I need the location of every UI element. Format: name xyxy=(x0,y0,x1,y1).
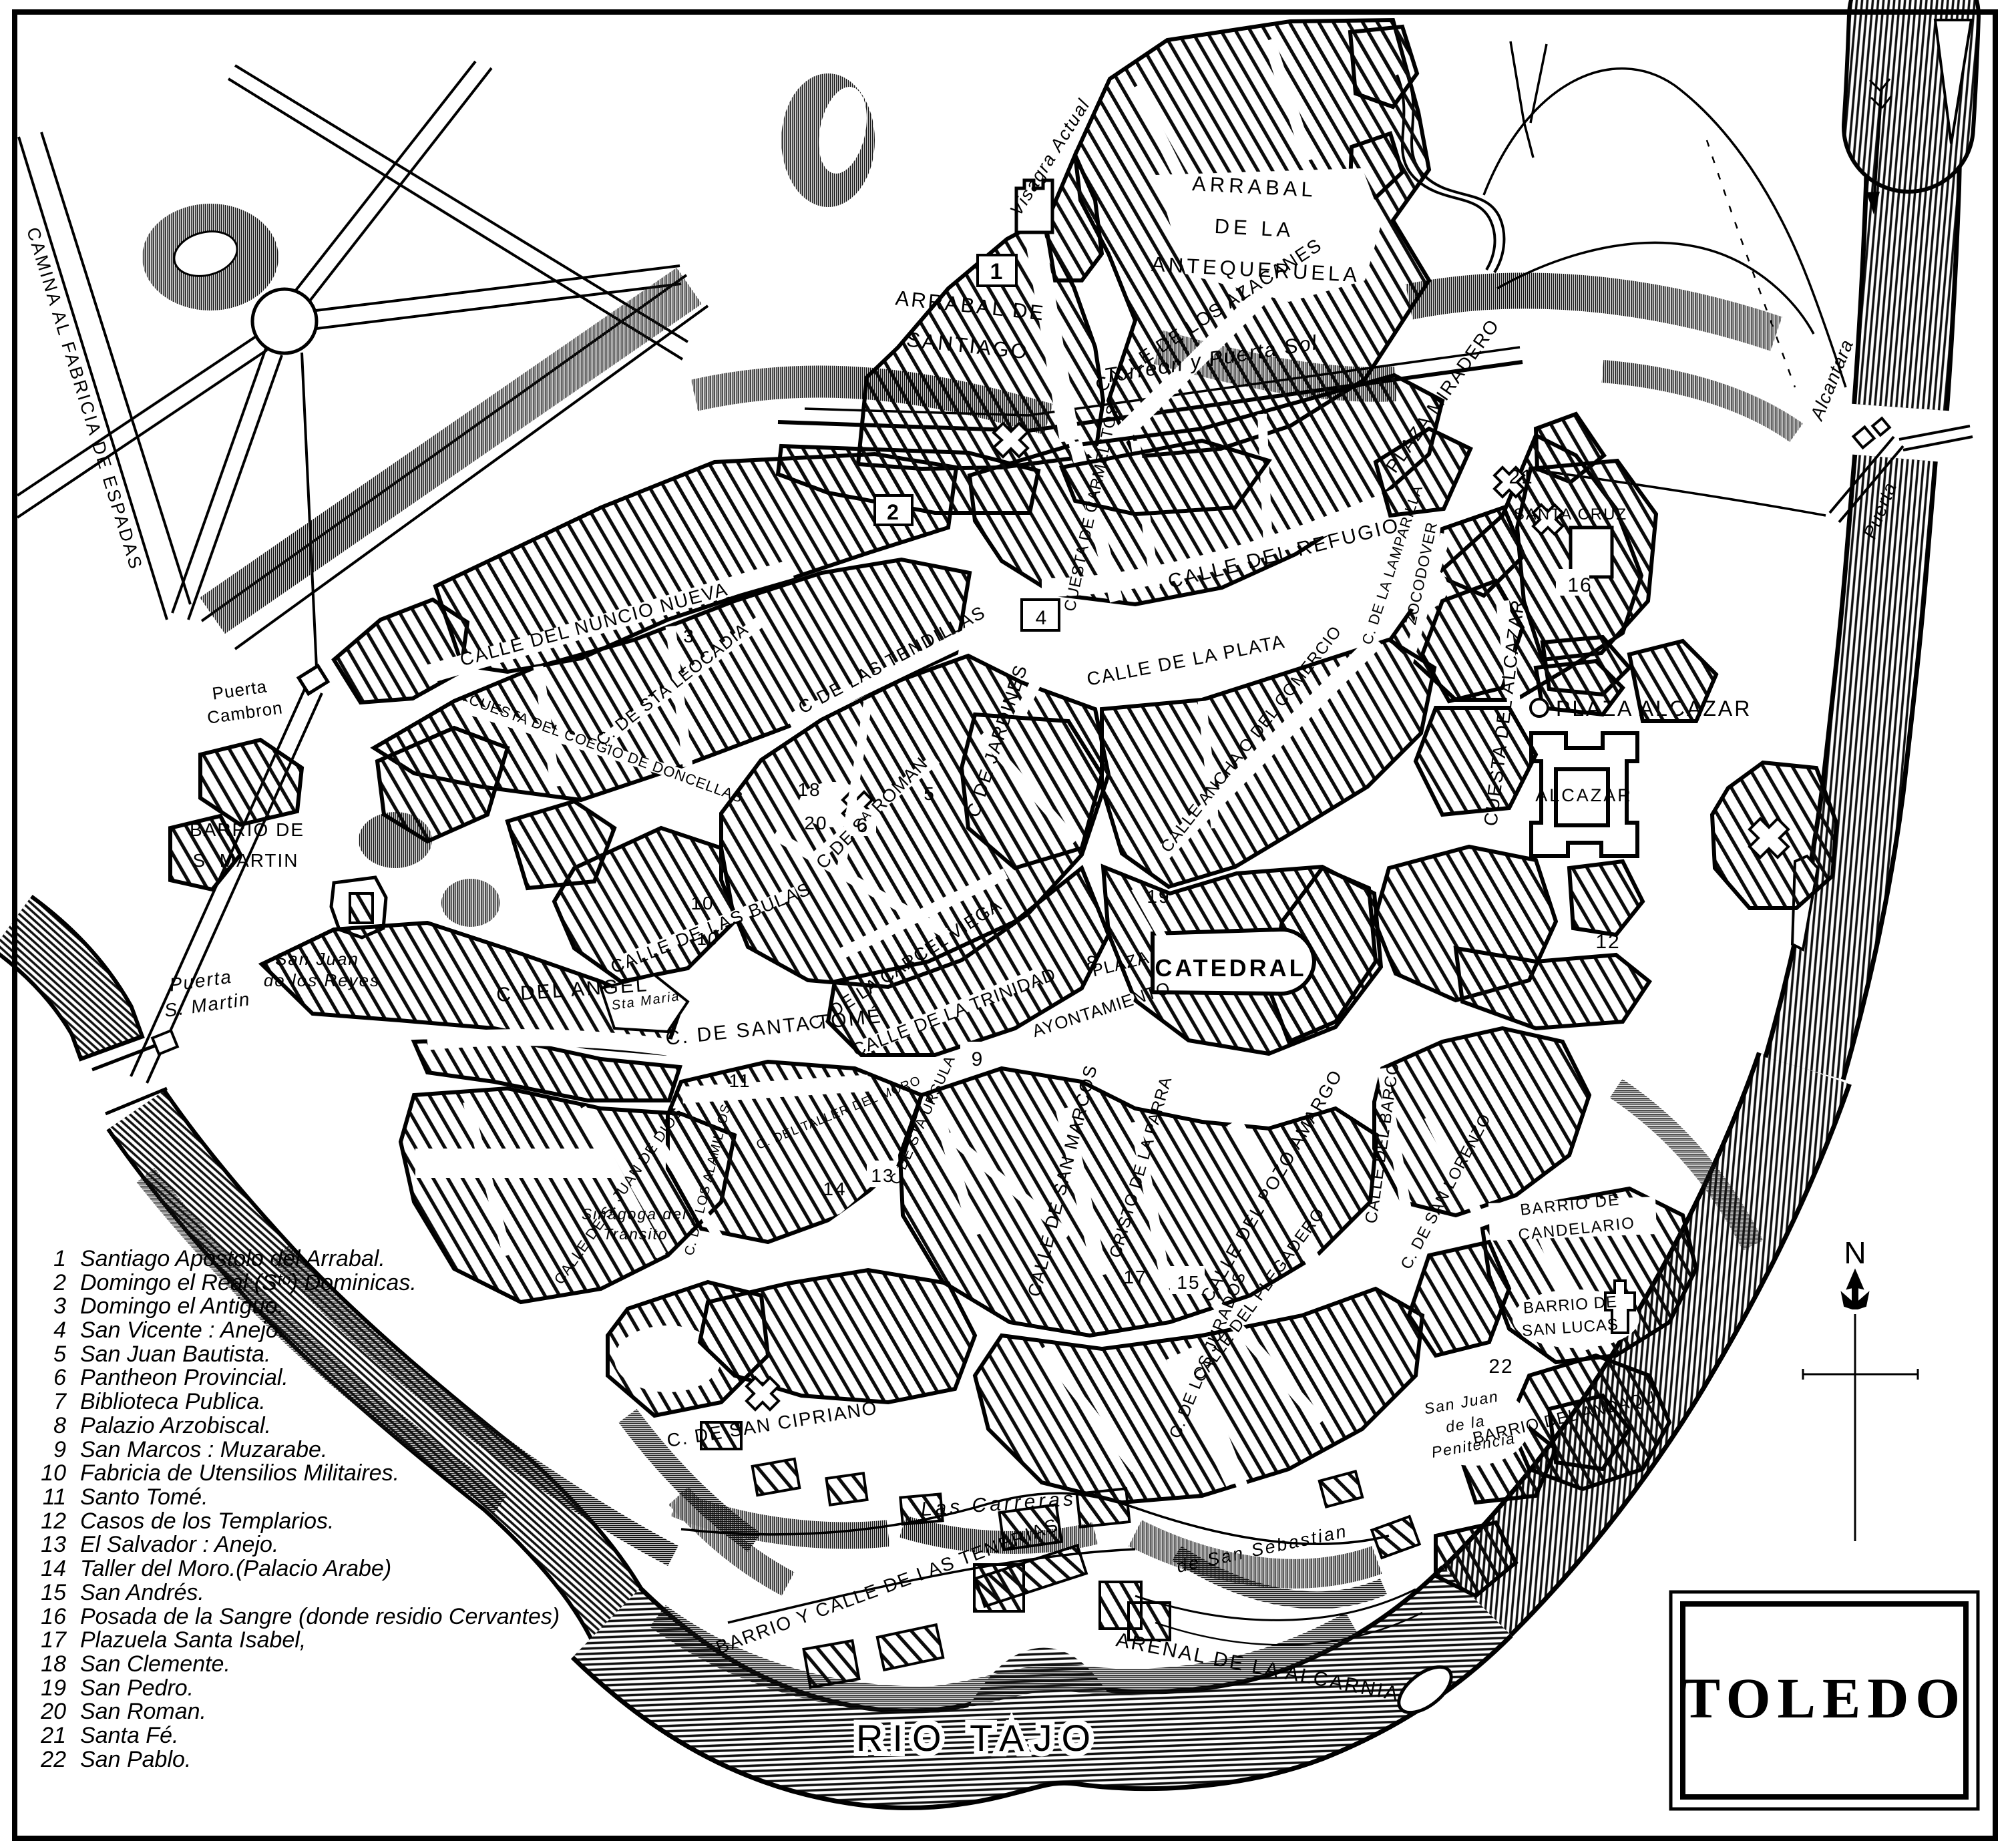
svg-text:S. MARTIN: S. MARTIN xyxy=(192,850,298,871)
svg-text:19: 19 xyxy=(41,1675,66,1701)
svg-text:5: 5 xyxy=(924,783,936,804)
svg-text:21: 21 xyxy=(40,1723,66,1748)
svg-text:CATEDRAL: CATEDRAL xyxy=(1155,954,1306,982)
svg-text:8: 8 xyxy=(53,1413,66,1438)
svg-text:de los Reyes: de los Reyes xyxy=(264,970,380,990)
svg-text:11: 11 xyxy=(43,1484,66,1510)
svg-text:Santa Fé.: Santa Fé. xyxy=(80,1723,178,1748)
svg-text:3: 3 xyxy=(683,626,695,646)
svg-text:San Pedro.: San Pedro. xyxy=(80,1675,194,1701)
svg-text:Palazio Arzobiscal.: Palazio Arzobiscal. xyxy=(80,1413,271,1438)
svg-text:17: 17 xyxy=(1123,1267,1147,1287)
svg-text:1: 1 xyxy=(53,1246,66,1271)
svg-text:4: 4 xyxy=(53,1317,66,1343)
svg-text:15: 15 xyxy=(41,1580,66,1605)
svg-text:4: 4 xyxy=(1036,607,1048,629)
svg-text:Transito: Transito xyxy=(603,1225,668,1243)
svg-text:Casos de los Templarios.: Casos de los Templarios. xyxy=(80,1508,334,1534)
svg-text:San Juan: San Juan xyxy=(275,949,359,969)
svg-text:18: 18 xyxy=(41,1651,66,1677)
svg-text:Biblioteca Publica.: Biblioteca Publica. xyxy=(80,1389,266,1414)
svg-text:Santo Tomé.: Santo Tomé. xyxy=(80,1484,208,1510)
svg-text:DE LA: DE LA xyxy=(1214,214,1295,242)
svg-text:16: 16 xyxy=(41,1604,66,1629)
svg-text:9: 9 xyxy=(53,1437,66,1462)
svg-text:ALCAZAR: ALCAZAR xyxy=(1535,785,1633,805)
svg-text:El Salvador : Anejo.: El Salvador : Anejo. xyxy=(80,1532,278,1557)
svg-text:20: 20 xyxy=(40,1699,66,1724)
svg-text:Santiago Apostolo del Arrabal.: Santiago Apostolo del Arrabal. xyxy=(80,1246,385,1271)
svg-text:15: 15 xyxy=(1177,1272,1200,1293)
svg-text:14: 14 xyxy=(823,1179,846,1199)
svg-text:SANTA CRUZ: SANTA CRUZ xyxy=(1514,505,1627,524)
svg-text:Plazuela Santa Isabel,: Plazuela Santa Isabel, xyxy=(80,1627,306,1653)
svg-text:3: 3 xyxy=(53,1293,66,1319)
svg-text:San Juan Bautista.: San Juan Bautista. xyxy=(80,1342,270,1367)
svg-text:22: 22 xyxy=(1488,1356,1513,1378)
svg-text:Domingo el Real (Sᵗᵒ) Dominica: Domingo el Real (Sᵗᵒ) Dominicas. xyxy=(80,1270,417,1295)
svg-text:N: N xyxy=(1844,1235,1866,1270)
svg-text:2: 2 xyxy=(887,500,900,524)
svg-text:San Clemente.: San Clemente. xyxy=(80,1651,230,1677)
svg-text:17: 17 xyxy=(41,1627,67,1653)
svg-text:18: 18 xyxy=(797,779,821,800)
svg-text:11: 11 xyxy=(729,1070,751,1091)
svg-text:9: 9 xyxy=(972,1048,984,1070)
svg-text:7: 7 xyxy=(53,1389,67,1414)
svg-text:20: 20 xyxy=(804,813,827,833)
svg-text:San Andrés.: San Andrés. xyxy=(80,1580,204,1605)
svg-text:16: 16 xyxy=(1567,574,1592,596)
svg-text:Fabricia de Utensilios Militai: Fabricia de Utensilios Militaires. xyxy=(80,1460,399,1486)
svg-text:Posada de la Sangre (donde res: Posada de la Sangre (donde residio Cerva… xyxy=(80,1604,560,1629)
svg-text:San Vicente : Anejo.: San Vicente : Anejo. xyxy=(80,1317,284,1343)
svg-text:Domingo el Antiguo.: Domingo el Antiguo. xyxy=(80,1293,284,1319)
svg-text:Pantheon Provincial.: Pantheon Provincial. xyxy=(80,1365,288,1390)
svg-text:San Roman.: San Roman. xyxy=(80,1699,206,1724)
svg-text:TOLEDO: TOLEDO xyxy=(1682,1666,1967,1730)
svg-text:10: 10 xyxy=(690,893,714,913)
svg-text:San Marcos : Muzarabe.: San Marcos : Muzarabe. xyxy=(80,1437,327,1462)
svg-text:5: 5 xyxy=(53,1342,66,1367)
svg-text:Taller del Moro.(Palacio Arabe: Taller del Moro.(Palacio Arabe) xyxy=(80,1556,391,1581)
svg-text:RIO TAJO: RIO TAJO xyxy=(856,1717,1100,1759)
svg-text:2: 2 xyxy=(53,1270,66,1295)
svg-text:12: 12 xyxy=(41,1508,66,1534)
svg-text:13: 13 xyxy=(41,1532,66,1557)
svg-text:10: 10 xyxy=(697,929,719,949)
svg-text:BARRIO DE: BARRIO DE xyxy=(190,819,305,840)
svg-text:10: 10 xyxy=(41,1460,66,1486)
svg-text:22: 22 xyxy=(40,1747,66,1772)
svg-text:19: 19 xyxy=(1147,886,1170,907)
svg-text:14: 14 xyxy=(41,1556,66,1581)
svg-text:San Pablo.: San Pablo. xyxy=(80,1747,191,1772)
svg-text:6: 6 xyxy=(53,1365,66,1390)
svg-text:1: 1 xyxy=(990,259,1004,284)
